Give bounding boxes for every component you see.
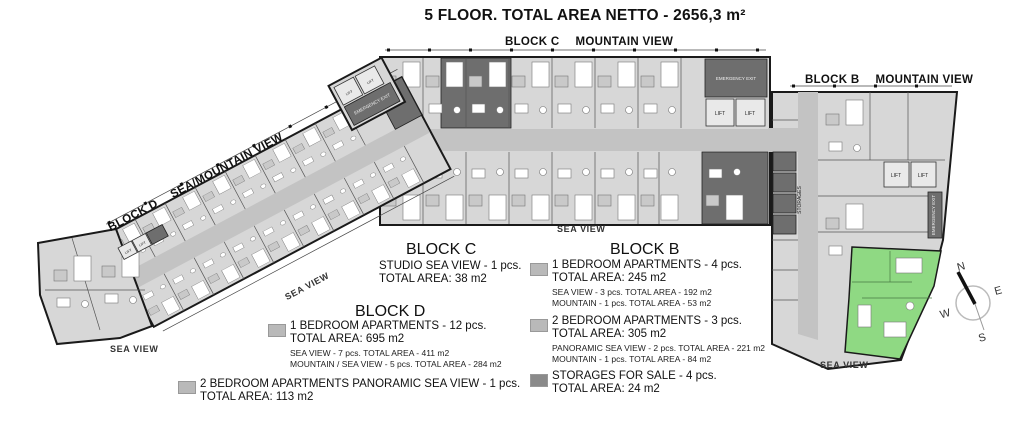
block-c-view: MOUNTAIN VIEW — [576, 36, 674, 48]
legend-block-c-title: BLOCK C — [406, 241, 476, 259]
legend-entry-total: TOTAL AREA: 305 m2 — [552, 328, 666, 340]
block-b-name: BLOCK B — [805, 74, 860, 86]
legend-block-d-title: BLOCK D — [355, 303, 425, 321]
legend-entry-label: STORAGES FOR SALE - 4 pcs. — [552, 370, 717, 382]
sea-view-label: SEA VIEW — [557, 224, 605, 234]
legend-entry-detail: PANORAMIC SEA VIEW - 2 pcs. TOTAL AREA -… — [552, 343, 765, 353]
legend-swatch — [178, 381, 196, 394]
legend-entry-label: 2 BEDROOM APARTMENTS PANORAMIC SEA VIEW … — [200, 378, 520, 390]
block-c-name: BLOCK C — [505, 36, 560, 48]
lift-label: LIFT — [715, 111, 725, 117]
storage-cell — [773, 194, 796, 213]
legend-swatch — [530, 263, 548, 276]
highlighted-apartment[interactable] — [845, 247, 941, 359]
storage-cell — [773, 152, 796, 171]
block-b-view: MOUNTAIN VIEW — [876, 74, 974, 86]
legend-entry-label: 2 BEDROOM APARTMENTS - 3 pcs. — [552, 315, 742, 327]
lift-label: LIFT — [918, 173, 928, 179]
legend-swatch — [268, 324, 286, 337]
legend-swatch — [530, 374, 548, 387]
block-c-plan: EMERGENCY EXIT LIFT LIFT — [380, 50, 770, 225]
legend-entry-label: 1 BEDROOM APARTMENTS - 4 pcs. — [552, 259, 742, 271]
block-b-plan: STORAGES LIFT LIFT EMERGENCY EXIT — [768, 86, 957, 369]
legend-entry-total: TOTAL AREA: 113 m2 — [200, 391, 313, 403]
block-b-header: BLOCK B MOUNTAIN VIEW — [805, 74, 973, 86]
legend-entry-detail: MOUNTAIN / SEA VIEW - 5 pcs. TOTAL AREA … — [290, 359, 502, 369]
legend-entry-detail: SEA VIEW - 7 pcs. TOTAL AREA - 411 m2 — [290, 348, 449, 358]
page-title: 5 FLOOR. TOTAL AREA NETTO - 2656,3 m² — [390, 7, 780, 25]
sea-view-label: SEA VIEW — [110, 344, 158, 354]
compass-north-label: N — [956, 260, 967, 274]
floor-plan-page: EMERGENCY EXIT LIFT LIFT STORAGES LIFT L… — [0, 0, 1024, 423]
legend-entry-total: TOTAL AREA: 695 m2 — [290, 333, 404, 345]
lift-label: LIFT — [891, 173, 901, 179]
compass: N E W S — [939, 260, 1004, 345]
legend-entry-detail: SEA VIEW - 3 pcs. TOTAL AREA - 192 m2 — [552, 287, 712, 297]
legend-block-b-title: BLOCK B — [610, 241, 679, 259]
sea-view-label: SEA VIEW — [820, 360, 868, 370]
legend-entry-total: TOTAL AREA: 38 m2 — [379, 273, 487, 285]
compass-south-label: S — [977, 331, 987, 344]
legend-entry-detail: MOUNTAIN - 1 pcs. TOTAL AREA - 53 m2 — [552, 298, 711, 308]
block-c-header: BLOCK C MOUNTAIN VIEW — [505, 36, 673, 48]
emergency-exit-label: EMERGENCY EXIT — [716, 76, 756, 81]
legend-entry-label: STUDIO SEA VIEW - 1 pcs. — [379, 260, 522, 272]
legend-entry-total: TOTAL AREA: 245 m2 — [552, 272, 666, 284]
storages-label: STORAGES — [797, 185, 803, 213]
storage-cell — [773, 215, 796, 234]
emergency-exit-label: EMERGENCY EXIT — [931, 195, 936, 235]
compass-west-label: W — [939, 307, 953, 321]
legend-swatch — [530, 319, 548, 332]
legend-entry-detail: MOUNTAIN - 1 pcs. TOTAL AREA - 84 m2 — [552, 354, 711, 364]
legend-entry-total: TOTAL AREA: 24 m2 — [552, 383, 660, 395]
lift-label: LIFT — [745, 111, 755, 117]
legend-entry-label: 1 BEDROOM APARTMENTS - 12 pcs. — [290, 320, 486, 332]
storage-cell — [773, 173, 796, 192]
compass-east-label: E — [993, 284, 1003, 297]
